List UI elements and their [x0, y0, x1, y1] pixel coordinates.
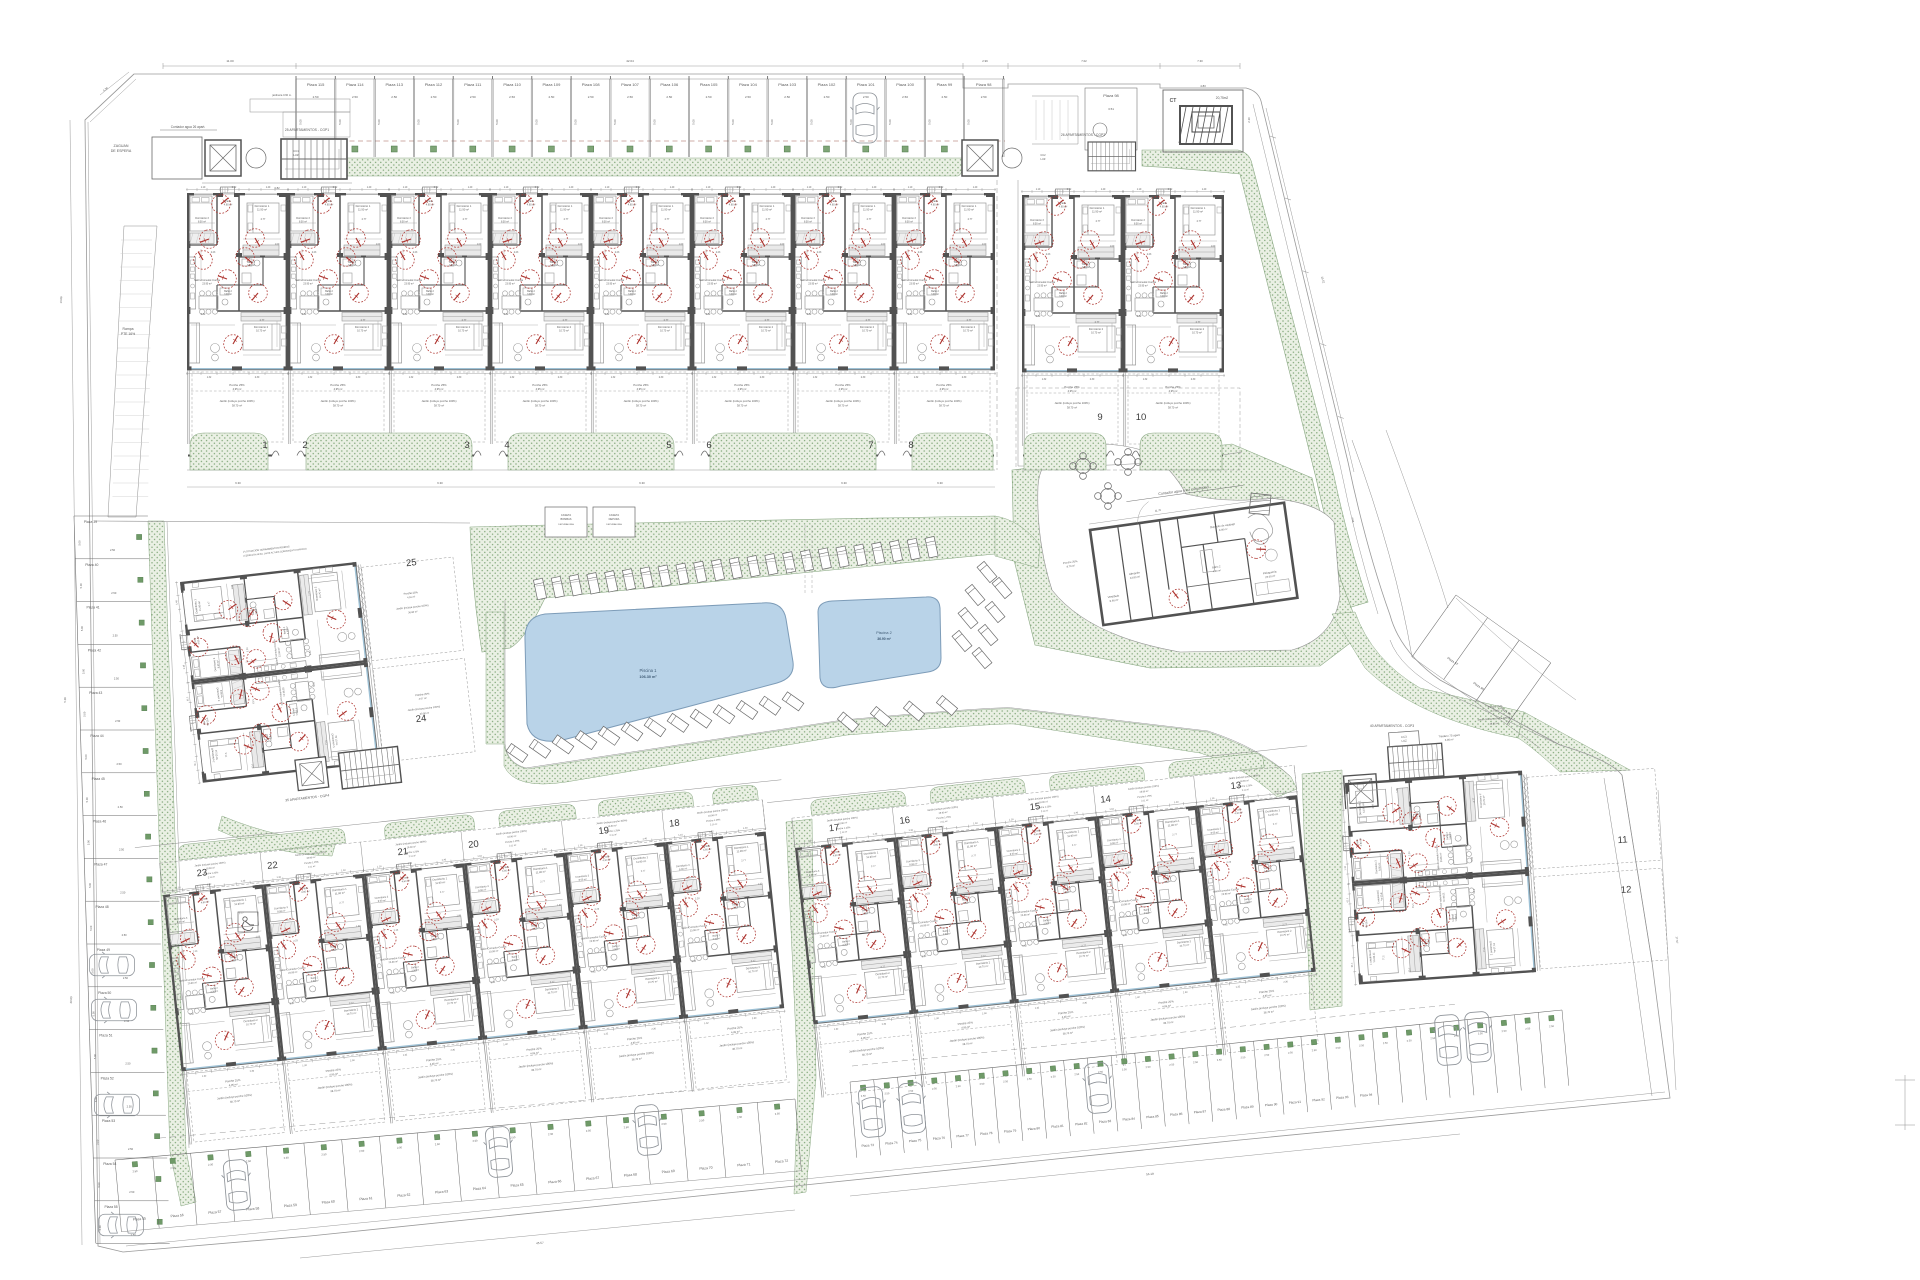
svg-text:DE ESPERA: DE ESPERA	[111, 149, 132, 153]
svg-text:DEPURADORA: DEPURADORA	[558, 523, 574, 526]
svg-text:36.90 m²: 36.90 m²	[877, 637, 891, 641]
svg-text:2.50: 2.50	[548, 95, 554, 99]
svg-text:5.00: 5.00	[849, 119, 853, 125]
svg-text:Plaza 104: Plaza 104	[739, 82, 758, 87]
svg-text:Plaza 49: Plaza 49	[97, 948, 110, 952]
svg-text:2.50: 2.50	[118, 805, 124, 809]
svg-text:5: 5	[666, 440, 671, 451]
svg-text:5.00: 5.00	[84, 754, 88, 760]
svg-text:40 APARTAMENTOS - CGP3: 40 APARTAMENTOS - CGP3	[1370, 724, 1414, 728]
svg-text:2.50: 2.50	[1501, 1030, 1507, 1033]
svg-text:24: 24	[415, 713, 427, 725]
svg-text:Piscina 1: Piscina 1	[640, 668, 658, 673]
svg-text:2.50: 2.50	[1359, 1044, 1365, 1047]
svg-text:Plaza 98: Plaza 98	[976, 82, 992, 87]
svg-text:2.50: 2.50	[1525, 1027, 1531, 1030]
svg-text:Plaza 114: Plaza 114	[346, 82, 364, 87]
svg-text:16: 16	[899, 815, 911, 827]
svg-text:2.50: 2.50	[624, 1125, 630, 1129]
svg-text:2.50: 2.50	[1051, 1075, 1057, 1078]
svg-text:12: 12	[1620, 884, 1631, 896]
svg-text:2.50: 2.50	[114, 676, 120, 680]
svg-text:2.50: 2.50	[1193, 1061, 1199, 1064]
svg-text:Plaza 46: Plaza 46	[93, 820, 106, 824]
svg-text:5.00: 5.00	[81, 668, 85, 674]
svg-text:8: 8	[908, 440, 913, 451]
svg-text:5.00: 5.00	[338, 119, 342, 125]
svg-text:Contador agua 26 apart.: Contador agua 26 apart.	[171, 125, 206, 129]
svg-text:2.50: 2.50	[941, 95, 947, 99]
svg-text:4.83: 4.83	[1200, 84, 1206, 88]
svg-text:11: 11	[1617, 834, 1628, 846]
svg-text:2.50: 2.50	[1122, 1068, 1128, 1071]
svg-text:2.50: 2.50	[1240, 1056, 1246, 1059]
svg-text:Plaza 48: Plaza 48	[95, 905, 108, 909]
svg-text:6.30: 6.30	[235, 481, 241, 485]
svg-text:20.69: 20.69	[69, 996, 73, 1004]
svg-text:2.50: 2.50	[863, 95, 869, 99]
svg-text:2.50: 2.50	[932, 1087, 938, 1090]
svg-text:5.00: 5.00	[534, 119, 538, 125]
svg-text:7.30: 7.30	[1197, 59, 1203, 63]
svg-text:Plaza 51: Plaza 51	[99, 1034, 112, 1038]
svg-text:5.00: 5.00	[456, 119, 460, 125]
svg-text:2.50: 2.50	[902, 95, 908, 99]
svg-text:5.00: 5.00	[87, 840, 91, 846]
svg-text:5.00: 5.00	[927, 119, 931, 125]
svg-text:2.50: 2.50	[1288, 1051, 1294, 1054]
svg-text:Plaza 54: Plaza 54	[103, 1162, 116, 1166]
svg-text:5.00: 5.00	[85, 797, 89, 803]
svg-text:5.00: 5.00	[495, 119, 499, 125]
svg-text:9: 9	[1097, 412, 1102, 423]
svg-text:45.57: 45.57	[536, 1241, 544, 1246]
svg-text:jardinera 0.60 m.: jardinera 0.60 m.	[271, 93, 292, 97]
svg-text:DEPURADORA: DEPURADORA	[606, 523, 622, 526]
svg-text:7: 7	[868, 440, 873, 451]
svg-text:2.50: 2.50	[979, 1082, 985, 1085]
svg-text:CC2: CC2	[1040, 153, 1046, 157]
svg-text:2.50: 2.50	[861, 1094, 867, 1097]
svg-text:2.50: 2.50	[132, 1169, 138, 1173]
svg-text:2.50: 2.50	[509, 95, 515, 99]
svg-text:5.00: 5.00	[92, 1011, 96, 1017]
svg-text:13.66: 13.66	[59, 296, 63, 304]
svg-text:2.50: 2.50	[1074, 1073, 1080, 1076]
svg-text:BOMBAS: BOMBAS	[560, 517, 571, 521]
svg-text:5.00: 5.00	[770, 119, 774, 125]
svg-text:2.50: 2.50	[548, 1132, 554, 1136]
svg-text:Plaza 98: Plaza 98	[1103, 93, 1119, 98]
svg-text:18: 18	[669, 818, 681, 830]
svg-text:2.50: 2.50	[1335, 1046, 1341, 1049]
svg-text:42.64: 42.64	[626, 59, 634, 63]
svg-text:2.50: 2.50	[1478, 1032, 1484, 1035]
svg-text:2.50: 2.50	[125, 1062, 131, 1066]
svg-text:2.50: 2.50	[1264, 1054, 1270, 1057]
svg-text:2.50: 2.50	[1217, 1058, 1223, 1061]
svg-text:2.50: 2.50	[1027, 1078, 1033, 1081]
svg-text:2.50: 2.50	[116, 762, 122, 766]
svg-text:2.50: 2.50	[113, 634, 119, 638]
svg-text:20,75m2: 20,75m2	[1216, 96, 1229, 100]
svg-text:5.00: 5.00	[78, 540, 82, 546]
svg-text:Plaza 43: Plaza 43	[89, 691, 102, 695]
svg-text:Plaza 50: Plaza 50	[98, 991, 111, 995]
svg-text:6.30: 6.30	[639, 481, 645, 485]
svg-text:5.36: 5.36	[63, 697, 67, 703]
svg-text:10: 10	[1136, 412, 1147, 423]
svg-text:Piscina 2: Piscina 2	[876, 631, 891, 635]
svg-text:Plaza 111: Plaza 111	[464, 82, 482, 87]
svg-text:Plaza 53: Plaza 53	[102, 1119, 115, 1123]
svg-text:5.00: 5.00	[89, 925, 93, 931]
svg-text:2.50: 2.50	[981, 95, 987, 99]
svg-text:2.50: 2.50	[208, 1162, 214, 1166]
svg-text:23.96: 23.96	[787, 567, 794, 571]
svg-text:Plaza 41: Plaza 41	[86, 606, 99, 610]
svg-text:LUZ: LUZ	[1401, 739, 1407, 743]
svg-text:Plaza 42: Plaza 42	[88, 648, 101, 652]
svg-text:6.30: 6.30	[937, 481, 943, 485]
svg-text:CASETA: CASETA	[609, 513, 619, 517]
svg-text:2.50: 2.50	[956, 1085, 962, 1088]
svg-text:2.50: 2.50	[111, 591, 117, 595]
svg-text:DEPURA: DEPURA	[609, 517, 620, 521]
svg-text:2.50: 2.50	[1549, 1025, 1555, 1028]
svg-text:2.50: 2.50	[1383, 1042, 1389, 1045]
svg-text:2.50: 2.50	[1312, 1049, 1318, 1052]
svg-text:2.50: 2.50	[284, 1155, 290, 1159]
svg-text:2.50: 2.50	[699, 1118, 705, 1122]
svg-text:1: 1	[262, 440, 267, 451]
svg-text:2.50: 2.50	[586, 1128, 592, 1132]
svg-text:Plaza 44: Plaza 44	[90, 734, 103, 738]
svg-text:2.50: 2.50	[1169, 1063, 1175, 1066]
svg-text:5.00: 5.00	[731, 119, 735, 125]
svg-text:2.50: 2.50	[706, 95, 712, 99]
svg-text:CT: CT	[1170, 98, 1177, 104]
svg-text:5.00: 5.00	[83, 711, 87, 717]
svg-text:Plaza 110: Plaza 110	[503, 82, 521, 87]
svg-text:6.30: 6.30	[437, 481, 443, 485]
svg-text:2.50: 2.50	[908, 1090, 914, 1093]
svg-text:2.50: 2.50	[510, 1135, 516, 1139]
svg-text:2.50: 2.50	[470, 95, 476, 99]
svg-text:Plaza 102: Plaza 102	[818, 82, 837, 87]
svg-text:Plaza 113: Plaza 113	[385, 82, 403, 87]
svg-text:3: 3	[464, 440, 469, 451]
svg-text:Plaza 108: Plaza 108	[582, 82, 601, 87]
svg-text:5.00: 5.00	[88, 882, 92, 888]
svg-text:Plaza 107: Plaza 107	[621, 82, 640, 87]
svg-text:2.50: 2.50	[661, 1122, 667, 1126]
svg-text:2.50: 2.50	[119, 848, 125, 852]
svg-text:2.50: 2.50	[1430, 1037, 1436, 1040]
svg-text:5.00: 5.00	[377, 119, 381, 125]
svg-text:2.50: 2.50	[627, 95, 633, 99]
svg-text:2.50: 2.50	[745, 95, 751, 99]
svg-text:Plaza 101: Plaza 101	[857, 82, 876, 87]
svg-text:2.50: 2.50	[129, 1190, 135, 1194]
svg-text:26 APARTAMENTOS - CGP2: 26 APARTAMENTOS - CGP2	[1061, 133, 1105, 137]
svg-text:2.50: 2.50	[1407, 1039, 1413, 1042]
svg-text:2.50: 2.50	[472, 1138, 478, 1142]
svg-text:Plaza 40: Plaza 40	[85, 563, 98, 567]
svg-text:Plaza 47: Plaza 47	[94, 862, 107, 866]
svg-text:5.00: 5.00	[967, 119, 971, 125]
svg-text:17.57: 17.57	[1675, 936, 1680, 944]
svg-text:14: 14	[1100, 794, 1112, 806]
svg-text:5.00: 5.00	[810, 119, 814, 125]
svg-text:Plaza 106: Plaza 106	[660, 82, 679, 87]
svg-text:2.50: 2.50	[884, 1092, 890, 1095]
svg-text:Plaza 39: Plaza 39	[84, 520, 97, 524]
svg-text:2.50: 2.50	[1003, 1080, 1009, 1083]
svg-text:Plaza 112: Plaza 112	[425, 82, 443, 87]
svg-text:5.00: 5.00	[79, 583, 83, 589]
svg-text:2.50: 2.50	[313, 95, 319, 99]
svg-text:Plaza 105: Plaza 105	[700, 82, 719, 87]
svg-text:2.50: 2.50	[123, 976, 129, 980]
svg-text:2.50: 2.50	[775, 1111, 781, 1115]
svg-text:5.00: 5.00	[80, 626, 84, 632]
svg-text:5.00: 5.00	[692, 119, 696, 125]
svg-text:LUZ: LUZ	[1041, 157, 1046, 161]
svg-text:Plaza 45: Plaza 45	[92, 777, 105, 781]
svg-text:Plaza 99: Plaza 99	[937, 82, 953, 87]
svg-text:5.00: 5.00	[90, 968, 94, 974]
svg-text:4.16 m²: 4.16 m²	[1491, 709, 1500, 713]
svg-text:Plaza 52: Plaza 52	[101, 1076, 114, 1080]
svg-text:2.99: 2.99	[982, 59, 988, 63]
svg-text:25 APARTAMENTOS - CGP1: 25 APARTAMENTOS - CGP1	[285, 128, 329, 132]
svg-text:Plaza 109: Plaza 109	[543, 82, 562, 87]
svg-text:2.50: 2.50	[120, 890, 126, 894]
svg-text:6.30: 6.30	[841, 481, 847, 485]
svg-text:5.00: 5.00	[96, 1139, 100, 1145]
svg-text:2.50: 2.50	[110, 548, 116, 552]
svg-text:5.00: 5.00	[574, 119, 578, 125]
svg-text:56.19: 56.19	[1146, 1172, 1154, 1177]
svg-text:2.50: 2.50	[431, 95, 437, 99]
svg-text:5.00: 5.00	[299, 119, 303, 125]
svg-text:Rampa: Rampa	[123, 327, 134, 331]
svg-text:20: 20	[468, 839, 480, 851]
svg-text:2.50: 2.50	[397, 1145, 403, 1149]
svg-text:CASETA: CASETA	[561, 513, 571, 517]
svg-text:2.50: 2.50	[122, 933, 128, 937]
svg-text:7.02: 7.02	[1081, 59, 1087, 63]
svg-text:Plaza 115: Plaza 115	[307, 82, 325, 87]
svg-text:106.30 m²: 106.30 m²	[639, 675, 657, 679]
svg-text:2.50: 2.50	[435, 1142, 441, 1146]
svg-text:25: 25	[405, 557, 417, 569]
svg-text:LUZ: LUZ	[293, 153, 299, 157]
svg-text:2.10: 2.10	[1247, 117, 1251, 123]
svg-text:5.00: 5.00	[417, 119, 421, 125]
svg-text:5.00: 5.00	[613, 119, 617, 125]
svg-text:ZAGUAN: ZAGUAN	[114, 144, 129, 148]
svg-text:22: 22	[267, 860, 279, 872]
svg-text:2.50: 2.50	[321, 1152, 327, 1156]
svg-text:2.50: 2.50	[127, 1104, 133, 1108]
svg-text:2.50: 2.50	[666, 95, 672, 99]
svg-text:2.50: 2.50	[1145, 1066, 1151, 1069]
svg-text:5.00: 5.00	[97, 1182, 101, 1188]
svg-text:6: 6	[706, 440, 711, 451]
svg-text:2.50: 2.50	[588, 95, 594, 99]
svg-text:3.00 m²: 3.00 m²	[1445, 737, 1454, 742]
svg-text:5.00: 5.00	[93, 1054, 97, 1060]
svg-text:2.50: 2.50	[359, 1149, 365, 1153]
svg-text:5.00: 5.00	[888, 119, 892, 125]
svg-text:Plaza 100: Plaza 100	[896, 82, 915, 87]
svg-text:2.50: 2.50	[784, 95, 790, 99]
svg-text:2.50: 2.50	[391, 95, 397, 99]
svg-text:Plaza 103: Plaza 103	[778, 82, 797, 87]
svg-text:2.50: 2.50	[128, 1147, 134, 1151]
svg-text:11.00: 11.00	[226, 59, 234, 63]
svg-text:Plaza 55: Plaza 55	[104, 1205, 117, 1209]
svg-text:5.00: 5.00	[652, 119, 656, 125]
svg-text:4: 4	[504, 440, 509, 451]
svg-text:3.51: 3.51	[1108, 107, 1114, 111]
svg-text:2.50: 2.50	[352, 95, 358, 99]
svg-text:2.50: 2.50	[737, 1115, 743, 1119]
svg-text:2.50: 2.50	[170, 1166, 176, 1170]
svg-text:PTE 16%: PTE 16%	[121, 332, 135, 336]
svg-text:2: 2	[302, 440, 307, 451]
svg-text:2.50: 2.50	[115, 719, 121, 723]
svg-text:2.50: 2.50	[824, 95, 830, 99]
